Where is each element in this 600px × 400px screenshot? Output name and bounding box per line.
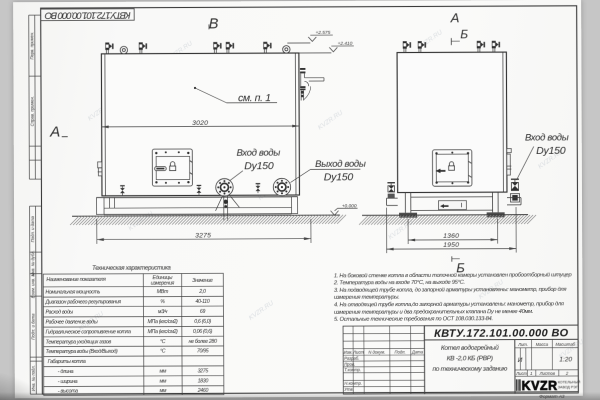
svg-text:- ширина: - ширина bbox=[58, 379, 78, 385]
svg-text:40-110: 40-110 bbox=[195, 299, 209, 305]
svg-text:Подп. и дата: Подп. и дата bbox=[30, 215, 35, 242]
svg-text:Изм.: Изм. bbox=[344, 350, 353, 355]
svg-text:KVZR.RU: KVZR.RU bbox=[127, 210, 155, 232]
svg-text:измерения температуры и два пр: измерения температуры и два предохраните… bbox=[334, 309, 533, 316]
svg-text:5. Остальные технические треб: 5. Остальные технические требования по О… bbox=[334, 316, 493, 323]
svg-text:Подп.: Подп. bbox=[395, 349, 406, 354]
svg-text:по техническому заданию: по техническому заданию bbox=[432, 364, 507, 372]
svg-text:1360: 1360 bbox=[443, 233, 459, 240]
svg-text:Рабочее давление воды: Рабочее давление воды bbox=[46, 319, 98, 325]
svg-text:Гидравлическое сопротивление к: Гидравлическое сопротивление котла bbox=[46, 329, 132, 335]
svg-text:Лист: Лист bbox=[352, 350, 364, 355]
svg-text:Выход воды: Выход воды bbox=[315, 159, 366, 170]
svg-text:мм: мм bbox=[160, 378, 167, 384]
svg-text:KVZR.RU: KVZR.RU bbox=[317, 109, 345, 131]
svg-text:КОТЕЛЬНЫЙ: КОТЕЛЬНЫЙ bbox=[558, 380, 581, 384]
svg-text:+2.575: +2.575 bbox=[315, 30, 330, 36]
svg-text:Масштаб: Масштаб bbox=[555, 342, 575, 347]
svg-text:Котел водогрейный: Котел водогрейный bbox=[441, 344, 499, 352]
svg-text:2: 2 bbox=[565, 371, 569, 376]
svg-text:Dy150: Dy150 bbox=[536, 145, 566, 157]
svg-text:+2.410: +2.410 bbox=[337, 41, 352, 47]
svg-text:1. На боковой стенке котла в: 1. На боковой стенке котла в области топ… bbox=[334, 271, 573, 279]
svg-text:Вход воды: Вход воды bbox=[237, 148, 281, 159]
svg-text:Лист: Лист bbox=[515, 371, 527, 376]
svg-text:69: 69 bbox=[200, 309, 206, 315]
svg-text:- длина: - длина bbox=[58, 369, 74, 375]
svg-text:1950: 1950 bbox=[443, 242, 459, 249]
svg-text:МПа (кгс/см2): МПа (кгс/см2) bbox=[148, 329, 179, 335]
svg-text:Пров.: Пров. bbox=[344, 362, 355, 367]
svg-text:КВТУ.172.101.00.000 ВО: КВТУ.172.101.00.000 ВО bbox=[44, 9, 131, 20]
svg-text:4. На отводящей трубе котла,д: 4. На отводящей трубе котла,до запорной … bbox=[334, 300, 564, 308]
svg-text:Температура уходящих газов: Температура уходящих газов bbox=[46, 339, 112, 345]
svg-text:Взам. инв. №: Взам. инв. № bbox=[30, 272, 35, 298]
svg-text:3275: 3275 bbox=[198, 368, 209, 374]
svg-text:Лит.: Лит. bbox=[517, 342, 528, 347]
svg-text:Т.контр.: Т.контр. bbox=[344, 367, 361, 372]
svg-text:°С: °С bbox=[160, 349, 166, 355]
svg-text:измерения температуры.: измерения температуры. bbox=[334, 295, 400, 301]
svg-text:1: 1 bbox=[530, 371, 532, 376]
svg-text:0,6 (6,0): 0,6 (6,0) bbox=[194, 319, 211, 325]
svg-text:ЗАВОД РЭП: ЗАВОД РЭП bbox=[558, 385, 579, 389]
svg-text:Инв. № дубл.: Инв. № дубл. bbox=[30, 250, 35, 276]
svg-text:2. Температура воды на входе: 2. Температура воды на входе 70°С, на вы… bbox=[333, 280, 465, 287]
svg-text:3020: 3020 bbox=[192, 120, 208, 127]
svg-text:В: В bbox=[209, 16, 219, 32]
svg-text:3275: 3275 bbox=[195, 232, 211, 239]
svg-text:0,06 (0,6): 0,06 (0,6) bbox=[193, 329, 213, 335]
svg-text:Разраб.: Разраб. bbox=[344, 356, 359, 361]
svg-text:Техническая характеристика: Техническая характеристика bbox=[92, 265, 171, 272]
svg-text:м3/ч: м3/ч bbox=[158, 309, 168, 315]
svg-text:Перв. примен.: Перв. примен. bbox=[29, 32, 34, 60]
svg-text:Вход воды: Вход воды bbox=[525, 132, 569, 143]
svg-text:Подп. и дата: Подп. и дата bbox=[30, 313, 35, 340]
svg-text:КВТУ.172.101.00.000 ВО: КВТУ.172.101.00.000 ВО bbox=[434, 327, 568, 340]
svg-text:70/95: 70/95 bbox=[197, 348, 209, 354]
svg-text:мм: мм bbox=[159, 369, 166, 375]
svg-text:КВ -2,0 КБ (РВР): КВ -2,0 КБ (РВР) bbox=[447, 355, 493, 362]
svg-text:МВт: МВт bbox=[157, 289, 169, 295]
svg-text:Габариты котла: Габариты котла bbox=[48, 359, 86, 365]
svg-text:+0.000: +0.000 bbox=[342, 203, 357, 209]
svg-text:KVZR.RU: KVZR.RU bbox=[248, 299, 276, 321]
svg-text:И: И bbox=[518, 357, 523, 364]
svg-text:не более 280: не более 280 bbox=[189, 339, 218, 345]
svg-text:Температура воды (Вход/Выход): Температура воды (Вход/Выход) bbox=[46, 349, 118, 355]
svg-text:Справ. примен.: Справ. примен. bbox=[30, 96, 35, 126]
svg-text:Диапазон рабочего регулировани: Диапазон рабочего регулирования bbox=[44, 299, 121, 305]
svg-text:А: А bbox=[450, 10, 460, 25]
svg-text:Н.контр.: Н.контр. bbox=[344, 381, 362, 386]
svg-text:А: А bbox=[49, 124, 60, 141]
svg-text:1:20: 1:20 bbox=[559, 356, 572, 363]
svg-text:°С: °С bbox=[160, 339, 166, 345]
svg-text:Б: Б bbox=[460, 27, 468, 41]
svg-text:%: % bbox=[160, 299, 165, 305]
svg-text:МПа (кгс/см2): МПа (кгс/см2) bbox=[148, 319, 179, 325]
svg-text:Номинальная мощность: Номинальная мощность bbox=[45, 289, 100, 295]
svg-text:N докум.: N докум. bbox=[368, 350, 385, 355]
svg-text:Значение: Значение bbox=[192, 278, 213, 284]
svg-text:Наименование показателя: Наименование показателя bbox=[46, 277, 106, 283]
svg-text:3. На подводящей трубе котла,: 3. На подводящей трубе котла, до запорно… bbox=[334, 286, 567, 294]
svg-text:Листов: Листов bbox=[539, 371, 556, 376]
svg-text:Dy150: Dy150 bbox=[324, 171, 354, 183]
svg-text:Масса: Масса bbox=[536, 342, 549, 347]
svg-text:Расход воды: Расход воды bbox=[45, 309, 73, 315]
svg-text:измерения: измерения bbox=[151, 281, 175, 287]
svg-text:2,0: 2,0 bbox=[198, 289, 206, 295]
svg-text:1830: 1830 bbox=[198, 378, 209, 384]
svg-text:Дата: Дата bbox=[411, 349, 424, 354]
svg-text:Dy150: Dy150 bbox=[244, 160, 274, 172]
svg-text:см. п. 1: см. п. 1 bbox=[238, 92, 271, 104]
